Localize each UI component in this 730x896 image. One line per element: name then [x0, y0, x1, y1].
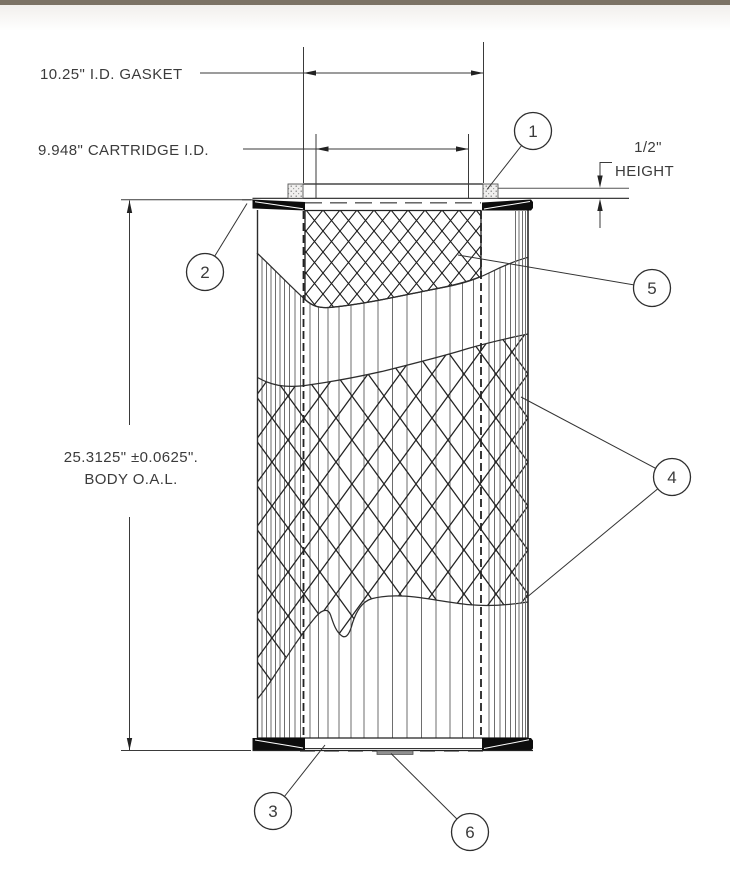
callout-6-number: 6: [465, 823, 474, 842]
bottom-end-assembly: [253, 738, 534, 754]
top-end-assembly: [242, 184, 629, 211]
cartridge-id-label: 9.948" CARTRIDGE I.D.: [38, 142, 209, 159]
drawing-page: 1 2 3 4 5 6 10.2: [0, 0, 730, 896]
window-chrome-shadow: [0, 5, 730, 31]
bottom-tab: [377, 751, 413, 755]
technical-drawing: 1 2 3 4 5 6 10.2: [0, 0, 730, 896]
callout-4-number: 4: [667, 468, 676, 487]
callout-2: 2: [187, 254, 224, 291]
gasket-id-label: 10.25" I.D. GASKET: [40, 66, 183, 83]
gasket-right: [483, 184, 498, 198]
callout-4: 4: [654, 459, 691, 496]
body-oal-label: BODY O.A.L.: [84, 471, 177, 488]
callout-1: 1: [515, 113, 552, 150]
callout-3: 3: [255, 793, 292, 830]
gasket-left: [288, 184, 303, 198]
body-oal-value: 25.3125" ±0.0625".: [64, 449, 199, 466]
callout-5: 5: [634, 270, 671, 307]
gasket-height-value: 1/2": [634, 139, 662, 156]
callout-2-number: 2: [200, 263, 209, 282]
fine-mesh-wrap: [305, 211, 481, 308]
callout-3-number: 3: [268, 802, 277, 821]
gasket-height-label: HEIGHT: [615, 163, 674, 180]
callout-6: 6: [452, 814, 489, 851]
callout-5-number: 5: [647, 279, 656, 298]
callout-1-number: 1: [528, 122, 537, 141]
